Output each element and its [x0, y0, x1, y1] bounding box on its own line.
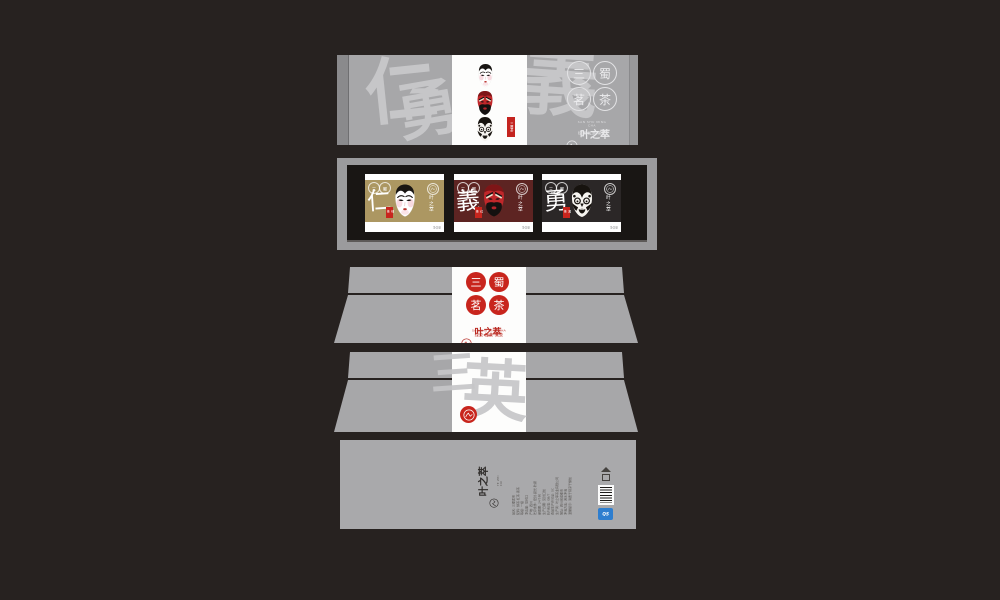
- series-ring-seal: 蜀: [593, 61, 617, 85]
- series-ring-seal: 茗: [567, 87, 591, 111]
- barcode-bars: [600, 487, 612, 503]
- brand-vertical-text: 叶之萃: [427, 195, 434, 212]
- series-ring-seal: 茶: [593, 87, 617, 111]
- card-art-gold: 三 蜀 仁 绿茶 叶之萃: [365, 180, 444, 222]
- card-footer: 净含量: [454, 222, 533, 232]
- barcode: [598, 485, 614, 505]
- product-info-block: 品名: 三蜀茗茶 配料: 绿茶·红茶·黑茶 等级: 一级 净含量: 见封口 产地…: [512, 457, 590, 515]
- brand-ring: [516, 183, 528, 195]
- brand-vertical-text: 叶之萃: [516, 195, 523, 212]
- red-series-tag-text: 三蜀茶: [509, 122, 512, 132]
- red-face-opera-mask-icon: [481, 183, 507, 218]
- panel-box-front: 三 蜀 茗 茶 SAN SHU MING CHA 绿茶·红茶·黑茶 叶之萃 YE…: [334, 267, 638, 343]
- panel-box-bottom: 叶之萃 YE ZHI CUI 品名: 三蜀茗茶 配料: 绿茶·红茶·黑茶 等级:…: [340, 440, 636, 529]
- qs-certification-mark: QS: [598, 508, 613, 520]
- series-red-seal: 茶: [489, 295, 509, 315]
- certification-marks-icon: [599, 466, 613, 482]
- white-face-opera-mask-icon: [392, 183, 418, 218]
- brand-logo-text: 叶之萃: [480, 462, 490, 496]
- panel-open-tray: 三 蜀 仁 绿茶 叶之萃 净含量 三 蜀 義 红茶 叶之萃: [337, 158, 657, 250]
- card-footer-text: 净含量: [522, 225, 530, 229]
- black-face-opera-mask-icon: [475, 116, 495, 142]
- card-footer: 净含量: [365, 222, 444, 232]
- tea-card-courage: 三 蜀 勇 黑茶 叶之萃 净含量: [542, 174, 621, 232]
- card-footer-text: 净含量: [610, 225, 618, 229]
- brand-logo-text: 叶之萃: [580, 131, 622, 141]
- tea-card-benevolence: 三 蜀 仁 绿茶 叶之萃 净含量: [365, 174, 444, 232]
- brand-emblem-seal: [460, 406, 477, 423]
- lid-left-edge: [337, 55, 349, 145]
- panel-box-back: 三 英: [334, 352, 638, 432]
- rotated-brand-logo: 叶之萃 YE ZHI CUI: [486, 462, 502, 508]
- brand-emblem-icon: [488, 498, 500, 508]
- red-face-opera-mask-icon: [475, 90, 495, 116]
- card-art-black: 三 蜀 勇 黑茶 叶之萃: [542, 180, 621, 222]
- card-footer-text: 净含量: [433, 225, 441, 229]
- qs-label: QS: [602, 512, 609, 517]
- brand-vertical-text: 叶之萃: [604, 195, 611, 212]
- brand-logo-subtext: YE ZHI CUI: [497, 472, 503, 486]
- red-series-tag: 三蜀茶: [507, 117, 515, 137]
- product-info-text: 品名: 三蜀茗茶 配料: 绿茶·红茶·黑茶 等级: 一级 净含量: 见封口 产地…: [512, 457, 573, 515]
- series-red-seal: 蜀: [489, 272, 509, 292]
- brand-emblem-icon: [463, 409, 475, 421]
- card-footer: 净含量: [542, 222, 621, 232]
- card-art-maroon: 三 蜀 義 红茶 叶之萃: [454, 180, 533, 222]
- tea-card-righteousness: 三 蜀 義 红茶 叶之萃 净含量: [454, 174, 533, 232]
- black-face-opera-mask-icon: [569, 183, 595, 218]
- brand-emblem-icon: [461, 338, 472, 344]
- brand-emblem-icon: [566, 140, 578, 146]
- series-red-seal: 茗: [466, 295, 486, 315]
- series-ring-seal: 三: [567, 61, 591, 85]
- panel-lid-top: 仁 義 勇 三蜀茶 三 蜀 茗 茶 SAN SHU MING CHA 绿茶·红茶…: [337, 55, 638, 145]
- series-red-seal: 三: [466, 272, 486, 292]
- lid-brand-block: 三 蜀 茗 茶 SAN SHU MING CHA 绿茶·红茶·黑茶 叶之萃 YE…: [559, 61, 631, 143]
- white-face-opera-mask-icon: [476, 63, 495, 88]
- brand-ring: [427, 183, 439, 195]
- lid-center-label-band: 三蜀茶: [452, 55, 527, 145]
- brand-ring: [604, 183, 616, 195]
- design-presentation-canvas: 仁 義 勇 三蜀茶 三 蜀 茗 茶 SAN SHU MING CHA 绿茶·红茶…: [0, 0, 1000, 600]
- front-label-band: 三 蜀 茗 茶 SAN SHU MING CHA 绿茶·红茶·黑茶 叶之萃 YE…: [452, 267, 526, 343]
- brand-logo-text: 叶之萃: [474, 329, 516, 338]
